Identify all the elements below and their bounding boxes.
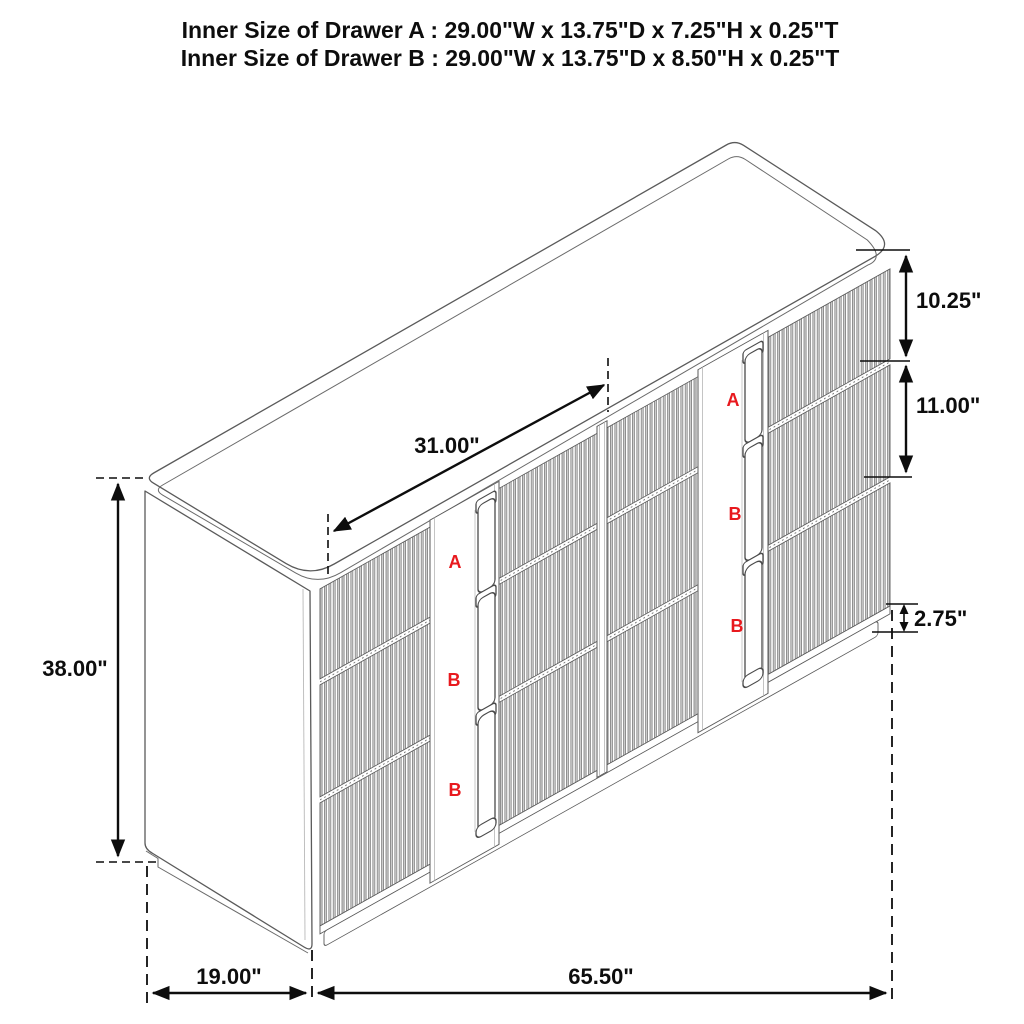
left-drawer-a-label: A: [449, 552, 462, 572]
drawer-opening-width-value: 31.00": [414, 433, 479, 458]
drawer-b2-handle: [745, 559, 762, 683]
drawer-a-handle: [478, 497, 495, 595]
dimension-overall-width: 65.50": [318, 964, 886, 993]
drawer-b2-handle: [478, 709, 495, 833]
middle-drawer-height-value: 11.00": [916, 393, 980, 418]
title-drawer-a-size: Inner Size of Drawer A : 29.00"W x 13.75…: [182, 17, 839, 43]
dimension-overall-height: 38.00": [42, 478, 158, 862]
top-drawer-height-value: 10.25": [916, 288, 981, 313]
drawer-b1-handle: [478, 591, 495, 713]
depth-value: 19.00": [196, 964, 261, 989]
diagram-canvas: Inner Size of Drawer A : 29.00"W x 13.75…: [0, 0, 1024, 1024]
overall-width-value: 65.50": [568, 964, 633, 989]
dresser-drawing: A B B A B B: [145, 143, 890, 953]
drawer-bank-seam: [597, 421, 607, 778]
title-drawer-b-size: Inner Size of Drawer B : 29.00"W x 13.75…: [181, 45, 840, 71]
right-drawer-b1-label: B: [729, 504, 742, 524]
left-handle-rail: [430, 481, 499, 883]
overall-height-value: 38.00": [42, 656, 107, 681]
dimension-depth: 19.00": [153, 964, 306, 993]
furniture-dimension-diagram: Inner Size of Drawer A : 29.00"W x 13.75…: [0, 0, 1024, 1024]
left-drawer-b2-label: B: [449, 780, 462, 800]
base-height-value: 2.75": [914, 606, 967, 631]
left-drawer-b1-label: B: [448, 670, 461, 690]
right-drawer-a-label: A: [727, 390, 740, 410]
drawer-a-handle: [745, 347, 762, 445]
right-drawer-b2-label: B: [731, 616, 744, 636]
title-block: Inner Size of Drawer A : 29.00"W x 13.75…: [181, 17, 840, 71]
drawer-b1-handle: [745, 441, 762, 563]
